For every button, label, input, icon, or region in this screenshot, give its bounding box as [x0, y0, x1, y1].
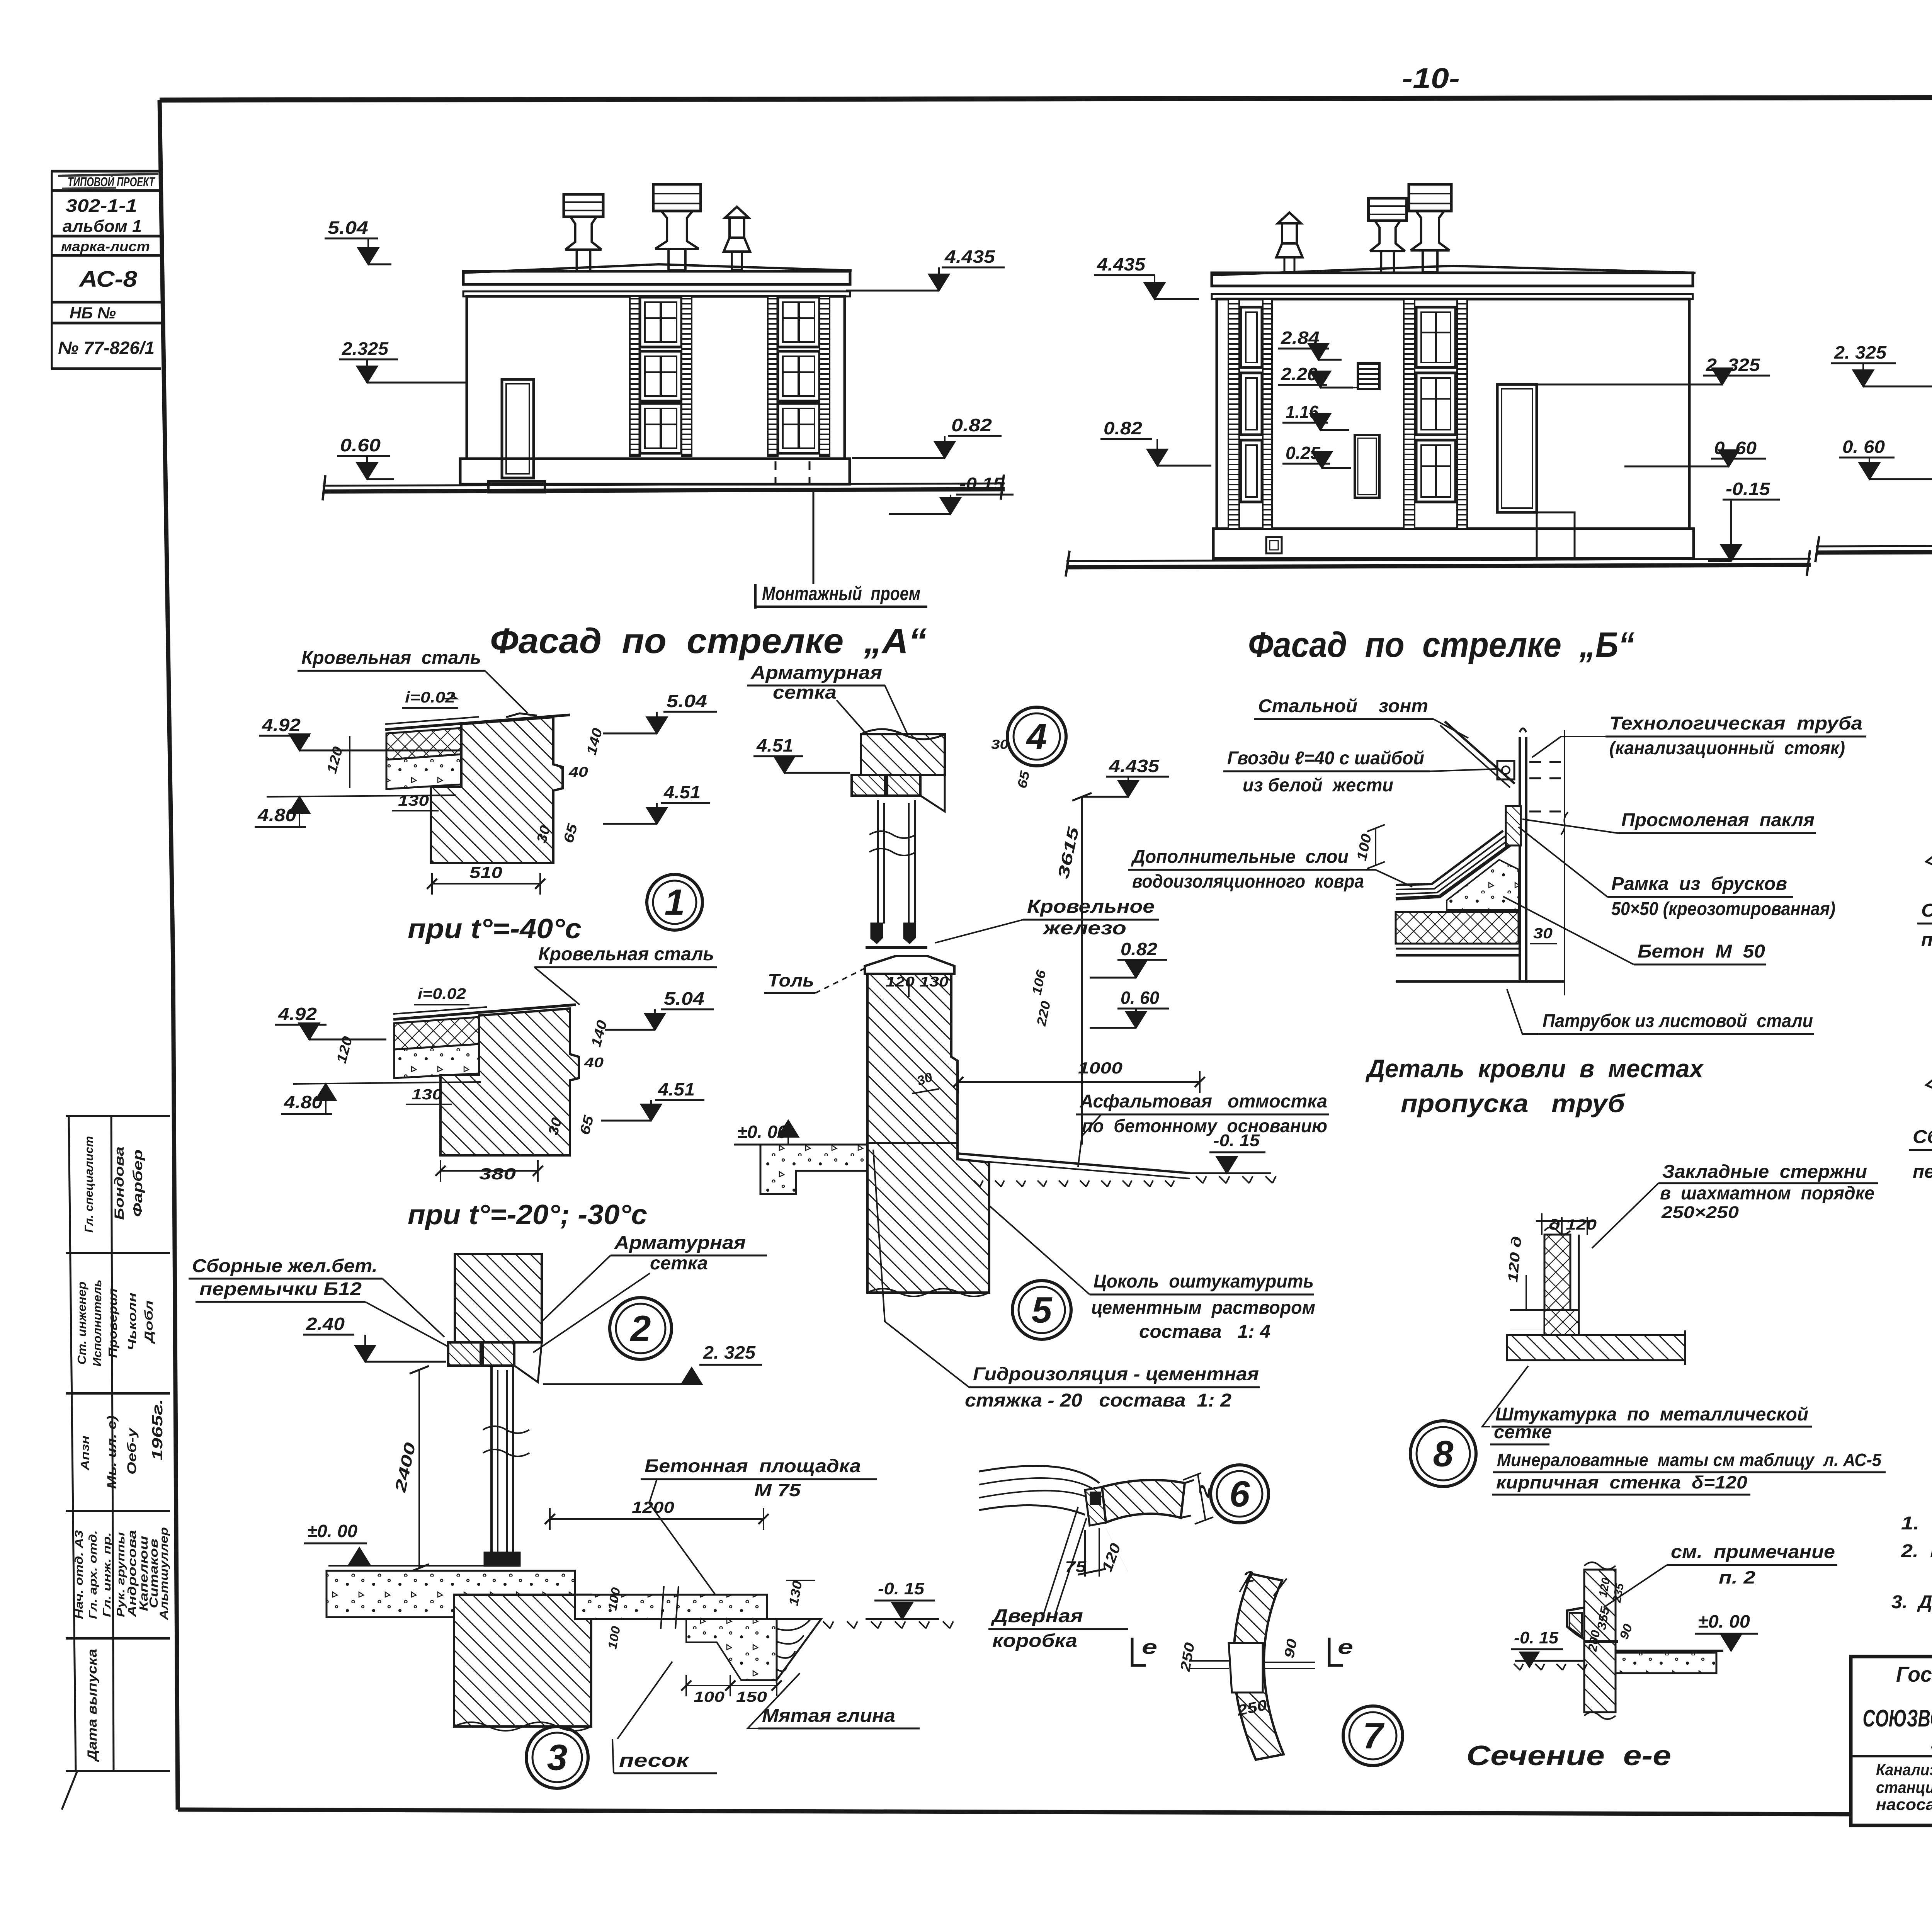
svg-text:Исполнитель: Исполнитель — [90, 1280, 104, 1367]
svg-text:Цоколь оштукатурить: Цоколь оштукатурить — [1094, 1271, 1314, 1292]
svg-text:Патрубок из листовой стали: Патрубок из листовой стали — [1543, 1011, 1813, 1031]
svg-text:40: 40 — [568, 764, 588, 780]
svg-text:Нач. отд. А3: Нач. отд. А3 — [73, 1530, 85, 1619]
svg-text:0.82: 0.82 — [1104, 418, 1142, 438]
svg-text:М 75: М 75 — [754, 1480, 801, 1500]
svg-text:4.435: 4.435 — [1109, 756, 1160, 776]
svg-text:-0. 15: -0. 15 — [878, 1579, 925, 1598]
svg-text:цементным раствором: цементным раствором — [1091, 1298, 1315, 1318]
svg-text:(канализационный стояк): (канализационный стояк) — [1609, 738, 1845, 759]
svg-text:Ст. инженер: Ст. инженер — [75, 1282, 88, 1365]
svg-text:Госстрой СССР: Госстрой СССР — [1896, 1662, 1932, 1686]
svg-text:250×250: 250×250 — [1661, 1203, 1739, 1222]
svg-text:Сборные жел.бет.: Сборные жел.бет. — [192, 1256, 378, 1276]
svg-text:Закладные стержни: Закладные стержни — [1662, 1162, 1867, 1182]
svg-text:120: 120 — [1566, 1217, 1597, 1233]
svg-text:Мь. ил. с): Мь. ил. с) — [105, 1415, 119, 1489]
svg-text:7: 7 — [1363, 1715, 1385, 1756]
svg-text:станция на 2 агрегата с: станция на 2 агрегата с — [1876, 1778, 1932, 1796]
svg-text:НБ №: НБ № — [70, 304, 116, 322]
svg-text:перемычки Б12: перемычки Б12 — [199, 1279, 362, 1300]
svg-text:Технологическая труба: Технологическая труба — [1609, 713, 1862, 734]
svg-text:из белой жести: из белой жести — [1243, 775, 1393, 796]
svg-text:4.92: 4.92 — [278, 1004, 317, 1024]
svg-text:см. примечание: см. примечание — [1671, 1542, 1835, 1562]
svg-text:1965г.: 1965г. — [150, 1399, 166, 1461]
svg-text:Кровельное: Кровельное — [1027, 896, 1155, 917]
svg-text:Дата выпуска: Дата выпуска — [85, 1649, 100, 1762]
svg-text:Апзн: Апзн — [79, 1436, 92, 1471]
svg-text:6: 6 — [1230, 1473, 1250, 1514]
svg-text:в шахматном порядке: в шахматном порядке — [1660, 1183, 1874, 1204]
svg-text:пропуска труб: пропуска труб — [1401, 1089, 1626, 1118]
svg-text:Асфальтовая отмостка: Асфальтовая отмостка — [1080, 1091, 1327, 1112]
svg-text:-0.15: -0.15 — [959, 474, 1005, 494]
svg-text:8: 8 — [1433, 1433, 1454, 1474]
svg-text:1. Совместно с данным см: 1. Совместно с данным см листы АС-6с, 7м… — [1901, 1513, 1932, 1534]
svg-text:при t°=-40°с: при t°=-40°с — [408, 913, 582, 944]
svg-text:40: 40 — [584, 1055, 604, 1070]
svg-text:4.51: 4.51 — [756, 735, 793, 755]
svg-text:5.04: 5.04 — [328, 218, 368, 238]
svg-text:п. 2: п. 2 — [1719, 1567, 1755, 1587]
svg-text:Дверная: Дверная — [990, 1606, 1083, 1626]
svg-text:стяжка - 20 состава 1: 2: стяжка - 20 состава 1: 2 — [965, 1390, 1231, 1411]
svg-text:150: 150 — [736, 1689, 767, 1705]
svg-text:Кровельная сталь: Кровельная сталь — [301, 648, 481, 668]
svg-text:Фасад по стрелке „Б“: Фасад по стрелке „Б“ — [1248, 625, 1634, 665]
svg-text:е: е — [1338, 1636, 1353, 1658]
svg-text:сетка: сетка — [773, 682, 837, 703]
svg-text:Стальной зонт: Стальной зонт — [1258, 696, 1428, 716]
svg-text:Дополнительные слои: Дополнительные слои — [1131, 847, 1349, 867]
svg-text:насосами 2¹/₂ НФ или: насосами 2¹/₂ НФ или — [1876, 1795, 1932, 1813]
svg-text:4.435: 4.435 — [944, 247, 996, 267]
svg-text:4.435: 4.435 — [1097, 254, 1146, 274]
svg-text:№ 77-826/1: № 77-826/1 — [58, 338, 155, 358]
svg-text:-0.15: -0.15 — [1726, 479, 1771, 499]
svg-text:Монтажный проем: Монтажный проем — [762, 583, 920, 604]
svg-text:4.80: 4.80 — [257, 805, 297, 825]
svg-text:5.04: 5.04 — [664, 988, 704, 1009]
svg-text:АС-8: АС-8 — [78, 267, 138, 292]
svg-text:Арматурная: Арматурная — [750, 663, 882, 683]
svg-text:4.92: 4.92 — [262, 715, 301, 735]
svg-text:перемычки Б 12: перемычки Б 12 — [1913, 1162, 1932, 1182]
svg-text:i=0.02: i=0.02 — [405, 689, 455, 706]
svg-text:2.40: 2.40 — [306, 1314, 345, 1334]
svg-text:Оеб-у: Оеб-у — [125, 1427, 139, 1475]
svg-text:1000: 1000 — [1078, 1059, 1122, 1077]
svg-text:д: д — [1549, 1217, 1560, 1233]
svg-text:по бетонному основанию: по бетонному основанию — [1082, 1116, 1327, 1136]
svg-text:кирпичная стенка δ=120: кирпичная стенка δ=120 — [1496, 1472, 1747, 1492]
svg-text:Кровельная сталь: Кровельная сталь — [538, 944, 714, 964]
svg-text:при t°=-20°; -30°с: при t°=-20°; -30°с — [408, 1199, 647, 1230]
svg-text:100: 100 — [694, 1689, 724, 1705]
svg-text:90: 90 — [1281, 1638, 1300, 1659]
svg-text:510: 510 — [469, 863, 502, 881]
svg-text:0.82: 0.82 — [951, 415, 992, 435]
svg-text:4: 4 — [1026, 716, 1047, 757]
svg-text:5: 5 — [1032, 1289, 1053, 1330]
svg-text:Толь: Толь — [768, 970, 814, 990]
svg-text:Добл: Добл — [143, 1300, 155, 1345]
svg-text:130: 130 — [412, 1087, 442, 1103]
svg-text:-0. 15: -0. 15 — [1514, 1628, 1559, 1647]
svg-text:302-1-1: 302-1-1 — [66, 196, 137, 216]
svg-text:железо: железо — [1042, 918, 1126, 939]
svg-text:альбом 1: альбом 1 — [63, 217, 142, 236]
svg-text:Мятая глина: Мятая глина — [762, 1706, 895, 1726]
svg-text:Гл. специалист: Гл. специалист — [83, 1136, 95, 1233]
svg-text:±0. 00: ±0. 00 — [307, 1521, 357, 1541]
svg-text:Канализационная насосная: Канализационная насосная — [1876, 1761, 1932, 1779]
svg-text:Фарбер: Фарбер — [131, 1150, 145, 1217]
svg-text:Альтшуллер: Альтшуллер — [158, 1527, 170, 1620]
svg-text:Рамка из брусков: Рамка из брусков — [1611, 874, 1787, 894]
svg-text:-10-: -10- — [1402, 62, 1460, 94]
svg-text:4.51: 4.51 — [658, 1079, 695, 1099]
svg-text:Бетонная площадка: Бетонная площадка — [645, 1456, 861, 1476]
svg-text:Бондова: Бондова — [112, 1146, 127, 1220]
svg-text:Сечение е-е: Сечение е-е — [1466, 1740, 1671, 1771]
svg-text:5.04: 5.04 — [667, 691, 707, 711]
svg-text:Минераловатные маты см таблиц: Минераловатные маты см таблицу л. АС-5 — [1497, 1450, 1882, 1470]
svg-text:Просмоленая пакля: Просмоленая пакля — [1621, 810, 1815, 830]
svg-text:2: 2 — [630, 1308, 651, 1349]
svg-text:4.80: 4.80 — [284, 1092, 323, 1112]
svg-text:30: 30 — [991, 737, 1009, 752]
svg-text:песок: песок — [619, 1750, 690, 1771]
svg-text:Проверил: Проверил — [106, 1288, 119, 1358]
svg-text:±0. 00: ±0. 00 — [1698, 1611, 1750, 1631]
svg-text:2.325: 2.325 — [342, 338, 389, 359]
svg-text:3: 3 — [547, 1737, 568, 1778]
svg-text:2. 325: 2. 325 — [1834, 342, 1887, 362]
svg-text:Чьколн: Чьколн — [126, 1293, 139, 1351]
svg-text:Гидроизоляция - цементная: Гидроизоляция - цементная — [973, 1364, 1259, 1385]
svg-text:Сб жел. бет.: Сб жел. бет. — [1921, 900, 1932, 921]
svg-text:сетка: сетка — [650, 1253, 708, 1274]
svg-text:перемычки БУ20: перемычки БУ20 — [1921, 930, 1932, 950]
svg-text:i=0.02: i=0.02 — [418, 985, 466, 1002]
svg-text:30: 30 — [1533, 925, 1553, 942]
svg-text:Бетон М 50: Бетон М 50 — [1638, 941, 1765, 962]
svg-text:120: 120 — [886, 974, 915, 990]
svg-text:Деталь кровли в местах: Деталь кровли в местах — [1365, 1054, 1704, 1083]
svg-text:130: 130 — [920, 974, 949, 990]
svg-text:0.60: 0.60 — [340, 435, 381, 455]
svg-text:50×50 (креозотированная): 50×50 (креозотированная) — [1611, 899, 1835, 919]
svg-text:Фасад по стрелке „А“: Фасад по стрелке „А“ — [490, 621, 927, 661]
svg-text:0.82: 0.82 — [1121, 939, 1157, 959]
svg-text:1: 1 — [665, 882, 685, 923]
svg-text:водоизоляционного ковра: водоизоляционного ковра — [1132, 871, 1364, 892]
svg-text:Гвозди ℓ=40 с шайбой: Гвозди ℓ=40 с шайбой — [1227, 748, 1424, 769]
svg-text:0. 60: 0. 60 — [1121, 988, 1159, 1008]
svg-text:Гл. арх. отд.: Гл. арх. отд. — [87, 1530, 99, 1619]
svg-text:±0. 00: ±0. 00 — [737, 1122, 787, 1142]
svg-text:сетке: сетке — [1494, 1422, 1552, 1442]
svg-text:марка-лист: марка-лист — [61, 238, 150, 254]
svg-text:4.51: 4.51 — [663, 782, 701, 802]
svg-text:коробка: коробка — [992, 1631, 1077, 1651]
svg-text:380: 380 — [479, 1165, 516, 1183]
svg-text:0. 60: 0. 60 — [1842, 437, 1885, 457]
svg-text:2. После пропуска трубы по: 2. После пропуска трубы поливочного кран… — [1901, 1541, 1932, 1561]
svg-text:Сб. жел. бет.: Сб. жел. бет. — [1913, 1127, 1932, 1147]
svg-text:2. 325: 2. 325 — [703, 1342, 756, 1362]
svg-text:е: е — [1142, 1636, 1157, 1658]
svg-text:3. Детали разработаны для: 3. Детали разработаны для стен толщиной … — [1891, 1592, 1932, 1613]
svg-text:Гл. инж. пр.: Гл. инж. пр. — [101, 1532, 113, 1617]
svg-text:состава 1: 4: состава 1: 4 — [1139, 1322, 1270, 1342]
svg-text:Арматурная: Арматурная — [614, 1233, 746, 1253]
svg-text:СОЮЗВОДОКАНАЛПРОЕКТ: СОЮЗВОДОКАНАЛПРОЕКТ — [1863, 1705, 1932, 1732]
